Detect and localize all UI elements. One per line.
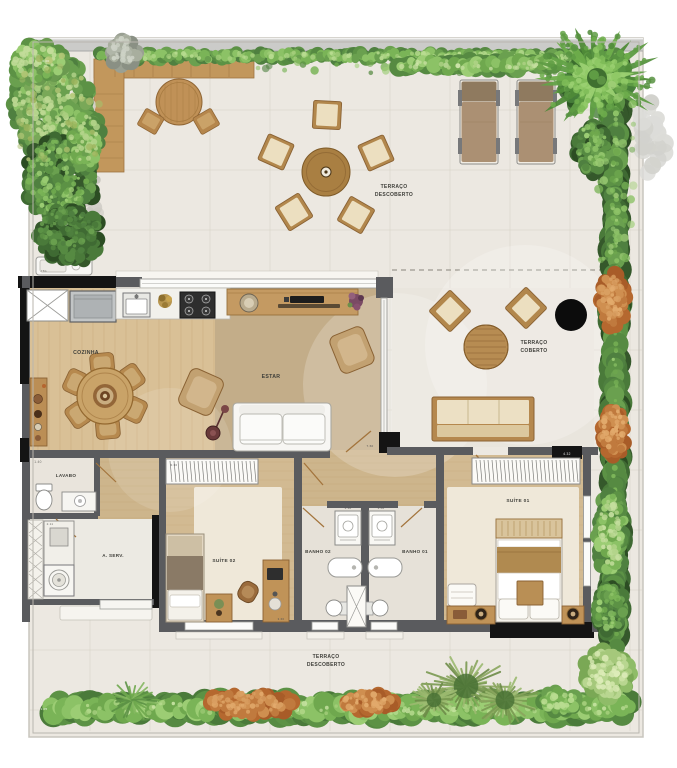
svg-text:1.06: 1.06	[377, 506, 384, 510]
svg-text:A. SERV.: A. SERV.	[102, 553, 124, 558]
svg-text:0.00: 0.00	[42, 59, 49, 63]
svg-text:LAVABO: LAVABO	[56, 473, 77, 478]
svg-text:COBERTO: COBERTO	[520, 348, 547, 354]
svg-text:1.40: 1.40	[34, 460, 41, 464]
svg-text:TERRAÇO: TERRAÇO	[521, 340, 548, 346]
svg-text:TERRAÇO: TERRAÇO	[313, 654, 340, 660]
svg-text:DESCOBERTO: DESCOBERTO	[307, 662, 345, 668]
svg-text:2.11: 2.11	[47, 522, 54, 526]
svg-text:4.32: 4.32	[563, 452, 570, 456]
svg-text:1.05: 1.05	[40, 707, 47, 711]
svg-text:DESCOBERTO: DESCOBERTO	[375, 192, 413, 198]
svg-text:7.60: 7.60	[366, 444, 373, 448]
svg-text:1.40: 1.40	[344, 506, 351, 510]
svg-text:TBA: TBA	[41, 269, 47, 273]
svg-text:0.60: 0.60	[171, 463, 178, 467]
svg-text:TERRAÇO: TERRAÇO	[381, 184, 408, 190]
svg-text:BANHO 01: BANHO 01	[402, 549, 428, 554]
svg-text:BANHO 02: BANHO 02	[305, 549, 331, 554]
svg-text:COZINHA: COZINHA	[73, 350, 99, 356]
svg-text:3.60: 3.60	[278, 617, 285, 621]
svg-text:ESTAR: ESTAR	[262, 374, 281, 380]
